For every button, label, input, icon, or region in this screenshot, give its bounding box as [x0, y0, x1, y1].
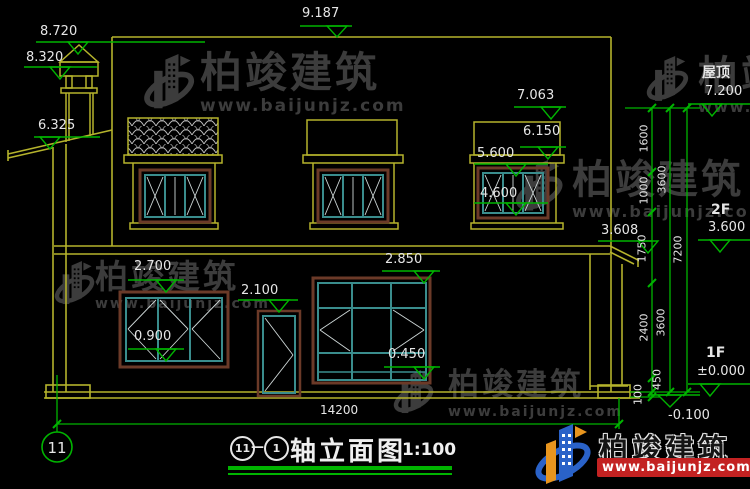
cad-elevation-screenshot: 柏竣建筑 www.baijunjz.com 柏竣建筑 www.baijunjz.…: [0, 0, 750, 489]
level-right-eave: 3.608: [601, 224, 638, 237]
axis-bubble-number: 11: [44, 439, 70, 457]
dim-1000: 1000: [639, 169, 650, 213]
level-win2f-sill: 4.600: [480, 187, 517, 200]
window-2f-left: [140, 170, 210, 222]
level-win2f-head: 5.600: [477, 147, 514, 160]
drawing-scale: 1:100: [402, 440, 456, 460]
title-underline-thin: [228, 473, 452, 475]
storey-level-1f: ±0.000: [697, 365, 745, 378]
storey-label-2f: 2F: [711, 203, 730, 217]
dim-3600-upper: 3600: [657, 158, 668, 202]
dim-100: 100: [633, 373, 644, 417]
title-axis-to: 1: [273, 442, 281, 455]
company-logo-icon: [533, 420, 597, 486]
level-mainwin-sill: 0.450: [388, 348, 425, 361]
storey-label-roof: 屋顶: [702, 66, 730, 80]
level-win1f-sill: 0.900: [134, 330, 171, 343]
title-axis-to-bubble: 1: [264, 436, 289, 461]
storey-label-1f: 1F: [706, 346, 725, 360]
entry-door: [258, 311, 300, 396]
title-axis-from: 11: [235, 442, 250, 455]
window-2f-middle: [318, 170, 388, 222]
dim-7200: 7200: [673, 228, 684, 272]
level-chimney-top: 8.720: [40, 25, 77, 38]
level-win1f-head: 2.700: [134, 260, 171, 273]
dim-1600: 1600: [639, 117, 650, 161]
dim-1750: 1750: [637, 227, 648, 271]
level-door-head: 2.100: [241, 284, 278, 297]
level-left-eave: 6.325: [38, 119, 75, 132]
company-logo-url: www.baijunjz.com: [597, 458, 750, 477]
level-mainwin-head: 2.850: [385, 253, 422, 266]
title-axis-separator: —: [251, 441, 264, 454]
level-canopy-top: 7.063: [517, 89, 554, 102]
storey-level-ground: -0.100: [668, 409, 710, 422]
level-chimney-cap: 8.320: [26, 51, 63, 64]
storey-level-2f: 3.600: [708, 221, 745, 234]
dim-total-width: 14200: [320, 404, 358, 416]
dim-2400: 2400: [639, 306, 650, 350]
title-underline-thick: [228, 466, 452, 470]
dim-450: 450: [652, 358, 663, 402]
level-parapet-top: 9.187: [302, 7, 339, 20]
drawing-title: 轴立面图: [290, 431, 406, 468]
storey-level-roof: 7.200: [705, 85, 742, 98]
level-canopy-bottom: 6.150: [523, 125, 560, 138]
dim-3600-lower: 3600: [656, 301, 667, 345]
